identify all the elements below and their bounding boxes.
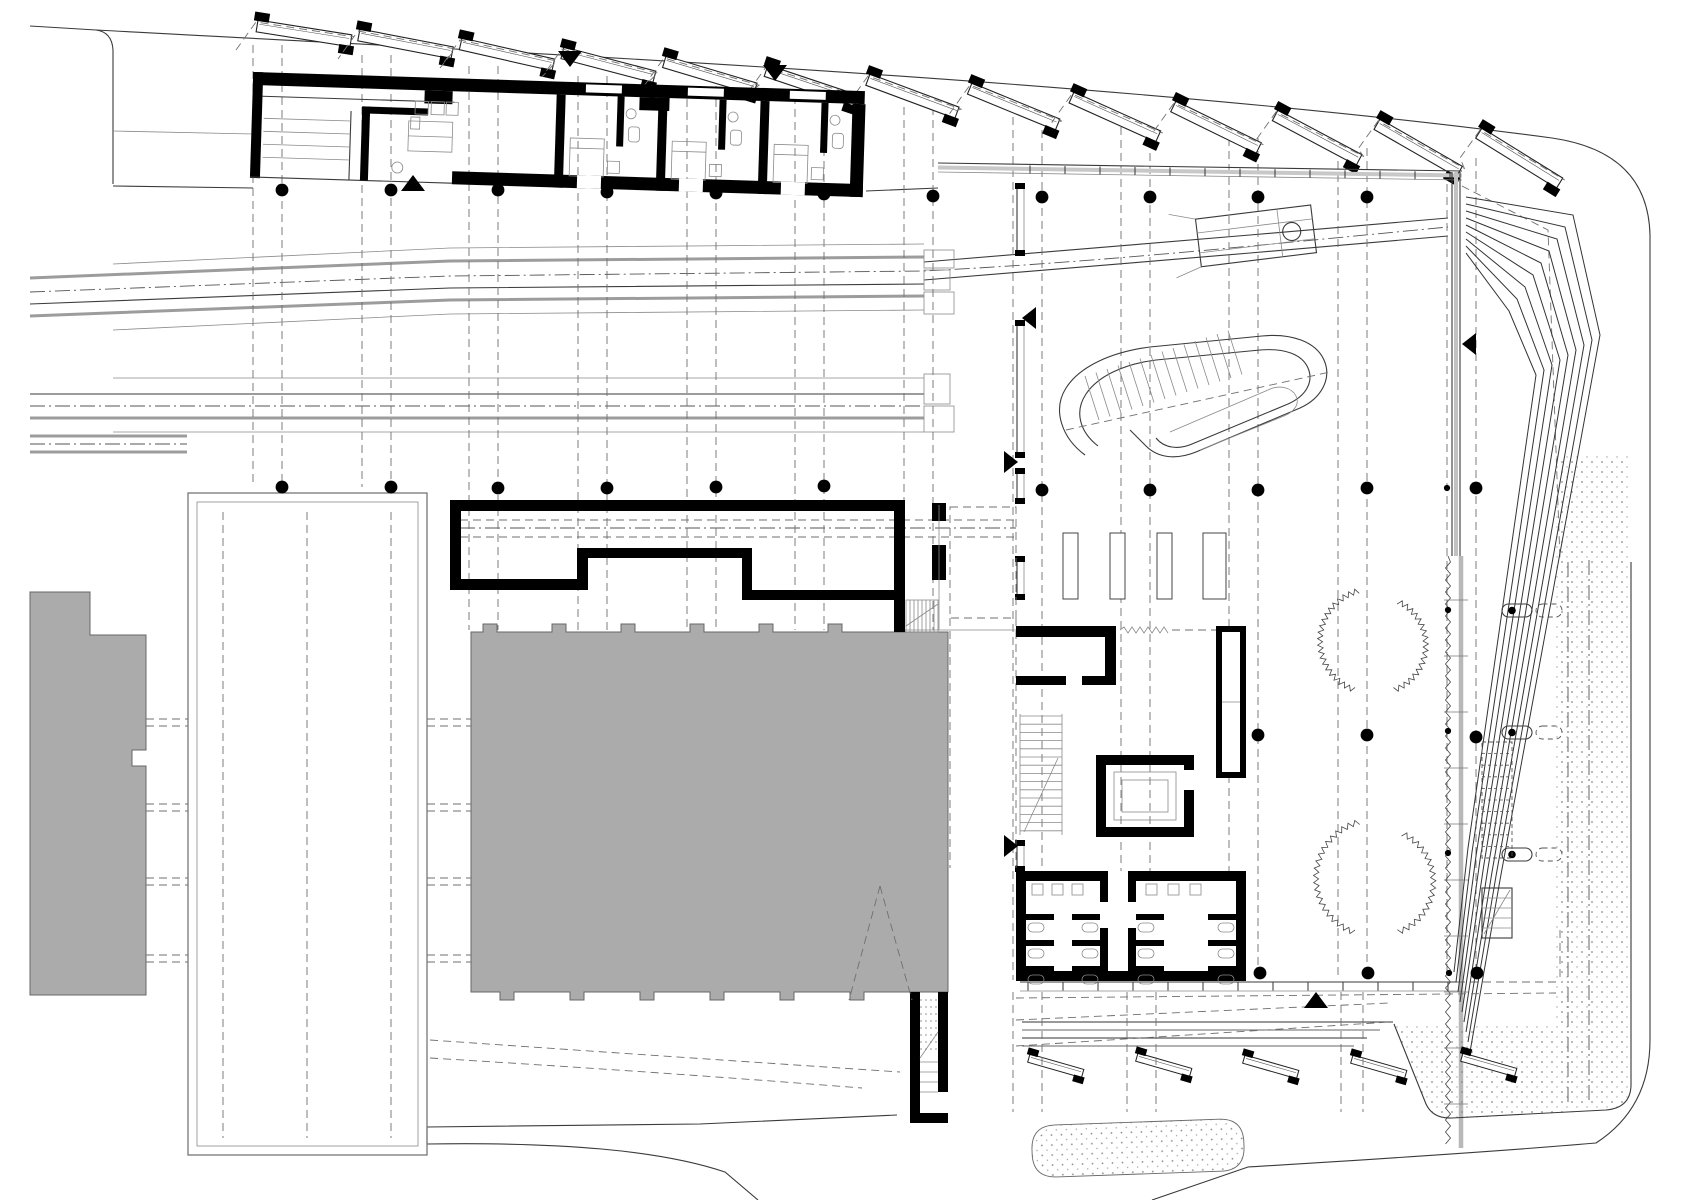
monitor-frame bbox=[967, 83, 1059, 130]
skylight-cap bbox=[1072, 1074, 1085, 1084]
column-dot bbox=[710, 187, 723, 200]
sink-icon bbox=[830, 115, 840, 125]
hall-interior bbox=[1016, 197, 1330, 984]
existing-building-left bbox=[30, 592, 146, 995]
curtain-squiggle bbox=[1120, 627, 1168, 633]
plaza-stair bbox=[910, 992, 948, 1123]
column-dot bbox=[927, 190, 940, 203]
ramp-tread bbox=[1173, 348, 1187, 392]
facade-ticks bbox=[1028, 165, 1450, 990]
guest-rooms-building bbox=[250, 72, 866, 197]
existing-buildings bbox=[30, 592, 948, 1000]
north-facade-core bbox=[938, 168, 1462, 176]
wc-icon bbox=[730, 130, 741, 145]
track-equipment-boxes bbox=[924, 250, 954, 432]
boundary-inner-road bbox=[113, 131, 253, 134]
bed bbox=[773, 144, 808, 183]
curtain-line bbox=[1120, 627, 1168, 633]
misc-dashed bbox=[146, 719, 471, 962]
monitor-cap bbox=[356, 20, 372, 32]
skylight-cap bbox=[1395, 1075, 1408, 1085]
roof-monitor-icon bbox=[352, 20, 458, 67]
sink-icon bbox=[728, 112, 738, 122]
monitor-line bbox=[1074, 96, 1157, 133]
window-slot bbox=[586, 84, 622, 93]
column-dot bbox=[492, 482, 505, 495]
column-dot bbox=[492, 184, 505, 197]
monitor-cap bbox=[338, 44, 354, 55]
stall-divider bbox=[1072, 966, 1100, 972]
south-roof-lines bbox=[1022, 1022, 1393, 1046]
track-b-edge bbox=[113, 378, 924, 432]
stall-divider bbox=[1072, 914, 1100, 920]
column-dot bbox=[276, 481, 289, 494]
ramp-tread bbox=[1184, 345, 1198, 389]
roof-monitor-icon bbox=[1062, 83, 1167, 151]
tree-icon bbox=[1394, 601, 1429, 691]
monitor-cap bbox=[458, 29, 475, 41]
column-dot bbox=[1144, 191, 1157, 204]
stall-divider bbox=[1136, 914, 1164, 920]
monitor-line bbox=[1278, 114, 1358, 157]
column-dot bbox=[1471, 967, 1484, 980]
tree-icon bbox=[1314, 821, 1360, 934]
column-dot-small bbox=[1445, 607, 1451, 613]
site-boundary bbox=[30, 26, 1650, 1200]
bed bbox=[671, 141, 706, 180]
cascade-step-line bbox=[1454, 253, 1536, 972]
stall-divider bbox=[1026, 966, 1054, 972]
stair-break-line bbox=[920, 1032, 938, 1058]
ramp-tread bbox=[1107, 369, 1121, 413]
column-dot bbox=[1361, 191, 1374, 204]
column-dot bbox=[1470, 731, 1483, 744]
bollard-dot bbox=[1508, 729, 1516, 737]
canopy-inner bbox=[197, 502, 418, 1146]
skylight-cap bbox=[1242, 1048, 1255, 1058]
room-divider bbox=[758, 101, 770, 194]
skylight-frame bbox=[1028, 1054, 1084, 1078]
column-dot bbox=[1252, 729, 1265, 742]
plaza-path-dashed bbox=[430, 1040, 900, 1088]
service-core bbox=[1016, 626, 1246, 837]
side-table bbox=[607, 161, 619, 173]
monitor-cap bbox=[662, 47, 679, 60]
ramp-tread bbox=[1129, 362, 1143, 406]
tree-icon bbox=[1397, 833, 1436, 933]
stall-divider bbox=[1072, 940, 1100, 946]
stall-divider bbox=[1026, 940, 1054, 946]
light-well bbox=[1203, 533, 1226, 599]
monitor-frame bbox=[256, 20, 352, 47]
monitor-line bbox=[972, 87, 1056, 122]
monitor-cap bbox=[254, 11, 270, 22]
platform-canopy bbox=[188, 493, 427, 1155]
boundary-top-left bbox=[30, 26, 113, 184]
skylight-frame bbox=[1351, 1055, 1407, 1079]
skylight-cap bbox=[1135, 1046, 1148, 1056]
roof-monitor-icon bbox=[859, 65, 965, 127]
wc-icon bbox=[832, 133, 843, 148]
ramp-tread bbox=[1140, 359, 1154, 403]
column-dot bbox=[601, 186, 614, 199]
ne-dashed-projection bbox=[1462, 186, 1560, 560]
existing-building-main bbox=[471, 624, 948, 1000]
room-divider bbox=[656, 98, 668, 191]
side-table bbox=[811, 168, 823, 180]
east-wall bbox=[850, 104, 866, 197]
conveyor-rails bbox=[924, 218, 1448, 280]
lounge-tables bbox=[263, 118, 351, 160]
column-dot bbox=[276, 184, 289, 197]
sink-icon bbox=[626, 109, 636, 119]
equipment-room bbox=[1096, 755, 1194, 837]
bollard-dot bbox=[1508, 607, 1516, 615]
wall-cap bbox=[1015, 452, 1025, 458]
pond bbox=[1031, 1118, 1245, 1177]
column-dot bbox=[1470, 482, 1483, 495]
bath-divider bbox=[718, 100, 727, 150]
monitor-cap bbox=[439, 56, 455, 68]
ramp-tread bbox=[1195, 341, 1209, 385]
ramp-tread bbox=[1096, 373, 1110, 417]
roof-monitor-icon bbox=[251, 11, 357, 55]
bollard-light-icon bbox=[1502, 848, 1532, 861]
skylight-icon bbox=[1023, 1047, 1088, 1084]
west-wall bbox=[250, 72, 263, 178]
monitor-line bbox=[870, 78, 955, 110]
skylight-cap bbox=[1287, 1075, 1300, 1085]
light-well bbox=[1157, 533, 1172, 599]
west-core-stair bbox=[1020, 714, 1062, 835]
stall-divider bbox=[1208, 940, 1236, 946]
bath-wall bbox=[360, 106, 370, 180]
bed-pillow-line bbox=[774, 154, 808, 155]
window-slot bbox=[790, 91, 826, 100]
skylight-cap bbox=[1027, 1047, 1040, 1057]
column-dot-small bbox=[1444, 485, 1450, 491]
roof-monitor-icon bbox=[1265, 101, 1369, 174]
bed-pillow-line bbox=[570, 148, 604, 149]
bollard-light-icon bbox=[1502, 604, 1532, 617]
entrance-arrow-icon bbox=[1462, 333, 1476, 355]
east-stair-solid-treads bbox=[1482, 898, 1512, 928]
column-dot bbox=[1252, 191, 1265, 204]
sink-icon bbox=[392, 162, 403, 173]
ramp-tread bbox=[1151, 355, 1165, 399]
light-wells bbox=[1063, 533, 1226, 599]
trees bbox=[1314, 589, 1436, 933]
column-dot bbox=[818, 480, 831, 493]
column-dot bbox=[1362, 967, 1375, 980]
side-table bbox=[709, 164, 721, 176]
roof-monitor-icon bbox=[1164, 92, 1269, 162]
kitchen bbox=[408, 101, 459, 153]
column-dot bbox=[601, 482, 614, 495]
boundary-bottom-road bbox=[427, 1115, 897, 1200]
skylight-icon bbox=[1346, 1048, 1411, 1085]
monitor-line bbox=[1482, 132, 1559, 180]
room-divider bbox=[554, 94, 566, 187]
south-projection-dashes bbox=[1013, 992, 1363, 1112]
ramp-sculpture bbox=[1060, 331, 1330, 457]
window-slot bbox=[688, 88, 724, 97]
west-core-stair-treads bbox=[1020, 716, 1062, 831]
stall-divider bbox=[1136, 966, 1164, 972]
plaza-stair-treads bbox=[920, 1000, 938, 1092]
column-dot bbox=[1144, 484, 1157, 497]
entrance-arrow-icon bbox=[401, 175, 425, 191]
ramp-tread bbox=[1206, 338, 1220, 382]
column-dot-small bbox=[1445, 728, 1451, 734]
column-dot bbox=[1361, 729, 1374, 742]
column-dot bbox=[1252, 484, 1265, 497]
stall-divider bbox=[1136, 940, 1164, 946]
toilets bbox=[1016, 871, 1246, 984]
column-dot bbox=[1036, 484, 1049, 497]
column-dot bbox=[1361, 482, 1374, 495]
monitor-frame bbox=[1171, 101, 1262, 154]
railway-tracks bbox=[30, 218, 1448, 537]
wc-icon bbox=[628, 127, 639, 142]
ramp-tread bbox=[1118, 366, 1132, 410]
stall-divider bbox=[1208, 914, 1236, 920]
roof-monitor-icon bbox=[1468, 119, 1570, 197]
column-dot bbox=[385, 481, 398, 494]
wall-cap bbox=[1015, 594, 1025, 600]
wall-cap bbox=[1015, 468, 1025, 474]
column-dot bbox=[385, 184, 398, 197]
wall-cap bbox=[1015, 320, 1025, 326]
entrance-arrow-icon bbox=[1304, 992, 1328, 1008]
door-gap bbox=[577, 175, 601, 189]
monitor-frame bbox=[1272, 110, 1362, 165]
canopy-dashes bbox=[223, 512, 391, 1138]
wall-cap bbox=[1015, 556, 1025, 562]
skylight-icon bbox=[1131, 1046, 1196, 1083]
stall-divider bbox=[1026, 914, 1054, 920]
conveyor-gantry bbox=[1169, 197, 1318, 278]
stall-divider bbox=[1208, 966, 1236, 972]
bath-divider bbox=[820, 103, 829, 153]
door-gap bbox=[781, 182, 805, 196]
skylight-cap bbox=[1350, 1048, 1363, 1058]
monitor-frame bbox=[1069, 92, 1161, 142]
column-dot bbox=[1036, 191, 1049, 204]
column-dot bbox=[710, 481, 723, 494]
skylight-icon bbox=[1238, 1048, 1303, 1085]
wc-icon bbox=[411, 117, 420, 129]
light-well bbox=[1063, 533, 1078, 599]
wall-cap bbox=[1015, 498, 1025, 504]
column-dot bbox=[818, 188, 831, 201]
skylight-frame bbox=[1243, 1055, 1299, 1079]
column-dot-small bbox=[1446, 970, 1452, 976]
monitor-line bbox=[1380, 123, 1459, 168]
west-entrance-canopy-dashed bbox=[950, 507, 1016, 868]
monitor-line bbox=[1176, 105, 1258, 145]
column-dot-small bbox=[1445, 850, 1451, 856]
wall-cap bbox=[1015, 183, 1025, 189]
skylight-frame bbox=[1136, 1053, 1192, 1077]
floor-plan-canvas bbox=[0, 0, 1697, 1200]
light-well bbox=[1110, 533, 1125, 599]
ramp-stair-treads bbox=[1085, 331, 1242, 421]
door-gap bbox=[679, 178, 703, 192]
column-dot bbox=[1254, 967, 1267, 980]
skylight-cap bbox=[1180, 1073, 1193, 1083]
bed bbox=[569, 138, 604, 177]
wall-cap bbox=[1015, 250, 1025, 256]
bed-pillow-line bbox=[672, 151, 706, 152]
bath-divider bbox=[616, 96, 625, 146]
floor-plan-page bbox=[0, 0, 1697, 1200]
